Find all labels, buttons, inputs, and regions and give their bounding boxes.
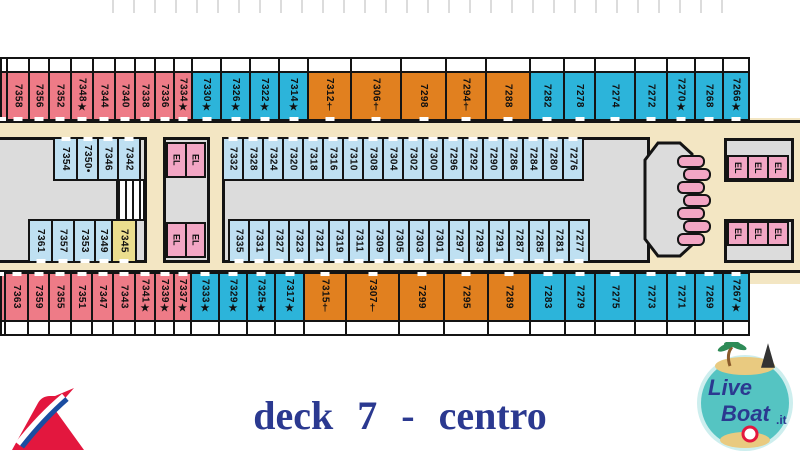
cabin-7288: 7288 — [485, 57, 531, 121]
balcony-box — [694, 57, 724, 71]
cabin-7287: 7287 — [508, 219, 530, 263]
cabin-7312: 7312† — [307, 57, 352, 121]
cabin-7276: 7276 — [562, 137, 584, 181]
cabin-7332: 7332 — [222, 137, 244, 181]
cabin-7297: 7297 — [448, 219, 470, 263]
cabin-7291: 7291 — [488, 219, 510, 263]
balcony-box — [134, 322, 156, 336]
cabin-number: 7273 — [646, 285, 657, 309]
cabin-number: 7320 — [288, 147, 299, 171]
cabin-number: 7337★ — [177, 279, 188, 314]
cabin-7274: 7274 — [594, 57, 636, 121]
cabin-number: 7359 — [33, 285, 44, 309]
cabin-7284: 7284 — [522, 137, 544, 181]
cabin-number: 7326★ — [230, 78, 241, 113]
cabin-7301: 7301 — [428, 219, 450, 263]
balcony-box — [345, 322, 400, 336]
cabin-7306: 7306† — [350, 57, 402, 121]
balcony-box — [666, 57, 696, 71]
cabin-number: 7328 — [248, 147, 259, 171]
cabin-7293: 7293 — [468, 219, 490, 263]
cabin-number: 7358 — [13, 84, 24, 108]
cabin-number: 7284 — [528, 147, 539, 171]
balcony-box — [563, 57, 596, 71]
cabin-7303: 7303 — [408, 219, 430, 263]
cabin-number: 7327 — [274, 229, 285, 253]
cabin-7356: 7356 — [28, 57, 50, 121]
elevator-box: EL — [166, 222, 187, 258]
balcony-box — [487, 322, 531, 336]
cabin-7325: 7325★ — [246, 272, 276, 336]
cabin-number: 7329★ — [228, 279, 239, 314]
cabin-number: 7293 — [474, 229, 485, 253]
balcony-box — [48, 322, 72, 336]
cabin-number: 7322★ — [259, 78, 270, 113]
cabin-7315: 7315† — [303, 272, 347, 336]
cabin-number: 7294† — [461, 78, 472, 113]
cabin-number: 7266★ — [731, 78, 742, 113]
cabin-number: 7340 — [120, 84, 131, 108]
cabin-7353: 7353 — [73, 219, 96, 263]
cabin-7352: 7352 — [48, 57, 72, 121]
cabin-number: 7287 — [514, 229, 525, 253]
liveboat-logo: Live Boat .it — [692, 342, 800, 456]
cabin-7339: 7339★ — [154, 272, 175, 336]
cabin-7299: 7299 — [398, 272, 445, 336]
elevator-label: EL — [753, 162, 763, 174]
cabin-row-center-bottom: 7335733173277323732173197311730973057303… — [228, 219, 590, 263]
cabin-7311: 7311 — [348, 219, 370, 263]
balcony-box — [114, 57, 136, 71]
cabin-number: 7323 — [294, 229, 305, 253]
lifebuoy-icon — [743, 427, 757, 441]
balcony-box — [154, 57, 175, 71]
cabin-7338: 7338 — [134, 57, 156, 121]
cabin-7347: 7347 — [91, 272, 114, 336]
cabin-number: 7302 — [408, 147, 419, 171]
cabin-7343: 7343 — [112, 272, 136, 336]
cabin-number: 7310 — [348, 147, 359, 171]
cabin-7323: 7323 — [288, 219, 310, 263]
logo-word-live: Live — [708, 375, 752, 400]
stairs-icon — [116, 179, 145, 221]
cabin-number: 7341★ — [140, 279, 151, 314]
cabin-7341: 7341★ — [134, 272, 156, 336]
elevator-box: EL — [185, 222, 206, 258]
elevator-label: EL — [733, 228, 743, 240]
cabin-number: 7288 — [503, 84, 514, 108]
cabin-number: 7307† — [367, 279, 378, 314]
cabin-number: 7348★ — [77, 78, 88, 113]
elevator-label: EL — [733, 162, 743, 174]
balcony-box — [154, 322, 175, 336]
cabin-number: 7281 — [554, 229, 565, 253]
cabin-number: 7335 — [234, 229, 245, 253]
cabin-row-center-top: 7332732873247320731873167310730873047302… — [222, 137, 584, 181]
cabin-number: 7270★ — [676, 78, 687, 113]
cabin-7320: 7320 — [282, 137, 304, 181]
cabin-7319: 7319 — [328, 219, 350, 263]
cabin-number: 7301 — [434, 229, 445, 253]
cabin-7333: 7333★ — [190, 272, 220, 336]
cabin-7358: 7358 — [6, 57, 30, 121]
cabin-number: 7314★ — [288, 78, 299, 113]
cabin-number: 7279 — [575, 285, 586, 309]
cabin-7277: 7277 — [568, 219, 590, 263]
upper-deck-tick-marks — [112, 0, 726, 13]
cabin-7318: 7318 — [302, 137, 324, 181]
cabin-7285: 7285 — [528, 219, 550, 263]
cabin-7350: 7350• — [76, 137, 99, 181]
balcony-box — [350, 57, 402, 71]
balcony-box — [400, 57, 447, 71]
cabin-number: 7292 — [468, 147, 479, 171]
balcony-box — [173, 57, 193, 71]
cabin-number: 7357 — [58, 229, 69, 253]
cabin-number: 7305 — [394, 229, 405, 253]
cabin-7335: 7335 — [228, 219, 250, 263]
cabin-7351: 7351 — [70, 272, 93, 336]
balcony-box — [666, 322, 696, 336]
cabin-number: 7271 — [676, 285, 687, 309]
balcony-box — [190, 322, 220, 336]
cabin-7330: 7330★ — [191, 57, 222, 121]
balcony-box — [48, 57, 72, 71]
eiffel-tower-icon — [762, 346, 774, 367]
cabin-7280: 7280 — [542, 137, 564, 181]
cabin-number: 7282 — [542, 84, 553, 108]
cabin-7363: 7363 — [4, 272, 29, 336]
elevator-group-left-bottom: ELEL — [166, 222, 206, 258]
balcony-box — [134, 57, 156, 71]
balcony-box — [112, 322, 136, 336]
cabin-number: 7321 — [314, 229, 325, 253]
cabin-number: 7338 — [140, 84, 151, 108]
cabin-7324: 7324 — [262, 137, 284, 181]
cabin-7269: 7269 — [694, 272, 724, 336]
balcony-box — [529, 57, 565, 71]
cabin-7334: 7334★ — [173, 57, 193, 121]
balcony-box — [249, 57, 280, 71]
cabin-number: 7291 — [494, 229, 505, 253]
cabin-number: 7319 — [334, 229, 345, 253]
balcony-box — [303, 322, 347, 336]
cabin-number: 7298 — [418, 84, 429, 108]
cabin-7342: 7342 — [117, 137, 141, 181]
cabin-7340: 7340 — [114, 57, 136, 121]
cabin-number: 7275 — [610, 285, 621, 309]
cabin-number: 7299 — [416, 285, 427, 309]
elevator-box: EL — [767, 155, 789, 180]
cabin-number: 7356 — [34, 84, 45, 108]
balcony-box — [246, 322, 276, 336]
cabin-number: 7354 — [60, 147, 71, 171]
balcony-box — [564, 322, 596, 336]
cabin-7307: 7307† — [345, 272, 400, 336]
cabin-7309: 7309 — [368, 219, 390, 263]
cabin-7361: 7361 — [28, 219, 53, 263]
cabin-number: 7290 — [488, 147, 499, 171]
elevator-group-right-top: ELELEL — [727, 155, 789, 180]
balcony-box — [91, 322, 114, 336]
cabin-7271: 7271 — [666, 272, 696, 336]
cabin-number: 7325★ — [256, 279, 267, 314]
cabin-7286: 7286 — [502, 137, 524, 181]
cabin-number: 7350• — [82, 145, 93, 173]
balcony-box — [307, 57, 352, 71]
cabin-7283: 7283 — [529, 272, 566, 336]
cabin-7267: 7267★ — [722, 272, 750, 336]
cabin-number: 7272 — [646, 84, 657, 108]
cabin-row-left-island-top: 73547350•73467342 — [53, 137, 141, 181]
cabin-7302: 7302 — [402, 137, 424, 181]
cabin-7290: 7290 — [482, 137, 504, 181]
cabin-number: 7333★ — [200, 279, 211, 314]
balcony-box — [722, 57, 750, 71]
cabin-7294: 7294† — [445, 57, 487, 121]
cabin-number: 7318 — [308, 147, 319, 171]
balcony-box — [529, 322, 566, 336]
balcony-box — [220, 57, 251, 71]
elevator-label: EL — [773, 162, 783, 174]
cabin-7268: 7268 — [694, 57, 724, 121]
cabin-number: 7342 — [124, 147, 135, 171]
elevator-box: EL — [767, 221, 789, 246]
cabin-7355: 7355 — [48, 272, 72, 336]
cabin-7322: 7322★ — [249, 57, 280, 121]
elevator-box: EL — [747, 221, 769, 246]
cabin-7281: 7281 — [548, 219, 570, 263]
balcony-box — [274, 322, 305, 336]
elevator-label: EL — [191, 154, 201, 166]
cabin-7328: 7328 — [242, 137, 264, 181]
balcony-box — [443, 322, 489, 336]
cabin-number: 7296 — [448, 147, 459, 171]
cabin-number: 7344 — [99, 84, 110, 108]
cabin-7289: 7289 — [487, 272, 531, 336]
cabin-number: 7334★ — [178, 78, 189, 113]
logo-tld: .it — [776, 413, 787, 427]
cabin-7305: 7305 — [388, 219, 410, 263]
cabin-7321: 7321 — [308, 219, 330, 263]
balcony-box — [28, 57, 50, 71]
balcony-box — [485, 57, 531, 71]
cabin-number: 7330★ — [201, 78, 212, 113]
balcony-box — [594, 322, 636, 336]
cabin-number: 7267★ — [731, 279, 742, 314]
elevator-label: EL — [172, 154, 182, 166]
cabin-7357: 7357 — [51, 219, 75, 263]
balcony-box — [634, 57, 668, 71]
cabin-7316: 7316 — [322, 137, 344, 181]
cabin-7266: 7266★ — [722, 57, 750, 121]
cabin-7329: 7329★ — [218, 272, 248, 336]
cabin-7310: 7310 — [342, 137, 364, 181]
cabin-number: 7316 — [328, 147, 339, 171]
elevator-box: EL — [727, 155, 749, 180]
atrium-shape — [634, 130, 734, 268]
cabin-number: 7336 — [159, 84, 170, 108]
cabin-number: 7351 — [76, 285, 87, 309]
cabin-7326: 7326★ — [220, 57, 251, 121]
cabin-row-bottom-outer: 7363735973557351734773437341★7339★7337★7… — [0, 272, 750, 336]
deck-plan-page: 7358735673527348★73447340733873367334★73… — [0, 0, 800, 457]
cabin-number: 7355 — [55, 285, 66, 309]
elevator-box: EL — [166, 142, 187, 178]
cabin-number: 7304 — [388, 147, 399, 171]
cabin-number: 7277 — [574, 229, 585, 253]
cabin-number: 7312† — [324, 78, 335, 113]
cabin-7327: 7327 — [268, 219, 290, 263]
cabin-number: 7309 — [374, 229, 385, 253]
cabin-number: 7280 — [548, 147, 559, 171]
cabin-7270: 7270★ — [666, 57, 696, 121]
cabin-7279: 7279 — [564, 272, 596, 336]
cabin-7295: 7295 — [443, 272, 489, 336]
cabin-number: 7295 — [461, 285, 472, 309]
cabin-number: 7306† — [371, 78, 382, 113]
cabin-row-left-island-bottom: 73617357735373497345 — [28, 219, 137, 263]
elevator-label: EL — [191, 234, 201, 246]
cabin-number: 7285 — [534, 229, 545, 253]
balcony-box — [634, 322, 668, 336]
cabin-number: 7353 — [79, 229, 90, 253]
cabin-number: 7343 — [119, 285, 130, 309]
balcony-box — [278, 57, 309, 71]
cabin-7282: 7282 — [529, 57, 565, 121]
cabin-number: 7349 — [98, 229, 109, 253]
cabin-number: 7297 — [454, 229, 465, 253]
elevator-box: EL — [727, 221, 749, 246]
elevator-label: EL — [172, 234, 182, 246]
cabin-number: 7278 — [574, 84, 585, 108]
balcony-box — [398, 322, 445, 336]
cabin-7354: 7354 — [53, 137, 78, 181]
cabin-number: 7324 — [268, 147, 279, 171]
elevator-box: EL — [747, 155, 769, 180]
cabin-7308: 7308 — [362, 137, 384, 181]
cabin-7278: 7278 — [563, 57, 596, 121]
balcony-box — [594, 57, 636, 71]
cabin-number: 7283 — [542, 285, 553, 309]
cabin-number: 7269 — [704, 285, 715, 309]
balcony-box — [70, 57, 94, 71]
cabin-7298: 7298 — [400, 57, 447, 121]
cabin-7292: 7292 — [462, 137, 484, 181]
cabin-number: 7345 — [119, 229, 130, 253]
cabin-number: 7317★ — [284, 279, 295, 314]
cabin-number: 7274 — [610, 84, 621, 108]
cabin-7300: 7300 — [422, 137, 444, 181]
cabin-7344: 7344 — [92, 57, 116, 121]
cabin-number: 7289 — [504, 285, 515, 309]
balcony-box — [70, 322, 93, 336]
deck-title: deck 7 - centro — [0, 392, 800, 439]
cabin-number: 7363 — [11, 285, 22, 309]
cabin-number: 7346 — [103, 147, 114, 171]
cabin-number: 7308 — [368, 147, 379, 171]
cabin-7273: 7273 — [634, 272, 668, 336]
cabin-number: 7311 — [354, 229, 365, 252]
elevator-label: EL — [753, 228, 763, 240]
balcony-box — [191, 57, 222, 71]
cabin-7336: 7336 — [154, 57, 175, 121]
cabin-number: 7361 — [35, 229, 46, 253]
balcony-box — [218, 322, 248, 336]
cabin-number: 7352 — [55, 84, 66, 108]
cabin-number: 7332 — [228, 147, 239, 171]
balcony-box — [4, 322, 29, 336]
cabin-7272: 7272 — [634, 57, 668, 121]
cabin-7317: 7317★ — [274, 272, 305, 336]
cabin-number: 7315† — [320, 279, 331, 314]
cabin-row-top-outer: 7358735673527348★73447340733873367334★73… — [0, 57, 750, 121]
cabin-number: 7347 — [97, 285, 108, 309]
cabin-7345: 7345 — [111, 219, 137, 263]
cabin-number: 7268 — [704, 84, 715, 108]
cabin-7296: 7296 — [442, 137, 464, 181]
cabin-7331: 7331 — [248, 219, 270, 263]
balcony-box — [722, 322, 750, 336]
cabin-7348: 7348★ — [70, 57, 94, 121]
cabin-7359: 7359 — [27, 272, 50, 336]
cabin-number: 7276 — [568, 147, 579, 171]
balcony-box — [6, 57, 30, 71]
balcony-box — [445, 57, 487, 71]
carnival-logo — [8, 386, 92, 452]
cabin-7346: 7346 — [97, 137, 119, 181]
cabin-number: 7331 — [254, 229, 265, 253]
cabin-7304: 7304 — [382, 137, 404, 181]
elevator-group-left-top: ELEL — [166, 142, 206, 178]
elevator-group-right-bottom: ELELEL — [727, 221, 789, 246]
cabin-number: 7303 — [414, 229, 425, 253]
elevator-box: EL — [185, 142, 206, 178]
balcony-box — [92, 57, 116, 71]
balcony-box — [694, 322, 724, 336]
cabin-number: 7300 — [428, 147, 439, 171]
balcony-box — [27, 322, 50, 336]
cabin-number: 7339★ — [159, 279, 170, 314]
cabin-number: 7286 — [508, 147, 519, 171]
logo-word-boat: Boat — [721, 401, 772, 426]
elevator-label: EL — [773, 228, 783, 240]
cabin-7275: 7275 — [594, 272, 636, 336]
cabin-7314: 7314★ — [278, 57, 309, 121]
